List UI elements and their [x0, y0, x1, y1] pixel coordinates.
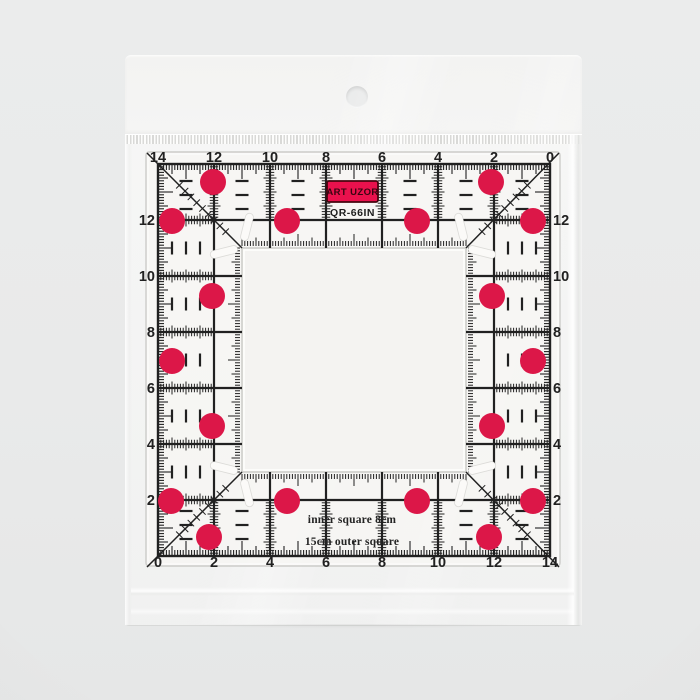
red-dot: [159, 348, 185, 374]
scale-number: 4: [147, 437, 155, 453]
scale-number: 8: [322, 150, 330, 166]
brand-label-text: ART UZOR: [326, 187, 378, 198]
scale-number: 12: [206, 150, 222, 166]
scene: 14121086420024681012141210864212108642 A…: [0, 0, 700, 700]
scale-number: 10: [430, 555, 446, 571]
inner-square-hole: [242, 248, 466, 472]
red-dot: [520, 208, 546, 234]
scale-number: 8: [378, 555, 386, 571]
scale-number: 4: [434, 150, 442, 166]
red-dot: [274, 208, 300, 234]
scale-number: 2: [553, 493, 561, 509]
scale-number: 8: [553, 325, 561, 341]
scale-number: 0: [546, 150, 554, 166]
red-dot: [479, 413, 505, 439]
caption-inner-square: inner square 8cm: [308, 514, 397, 526]
quilting-ruler: 14121086420024681012141210864212108642 A…: [0, 0, 700, 700]
red-dot: [404, 208, 430, 234]
scale-number: 10: [553, 269, 569, 285]
scale-number: 6: [322, 555, 330, 571]
caption-outer-square: 15cm outer square: [305, 536, 399, 548]
red-dot: [520, 348, 546, 374]
scale-number: 2: [210, 555, 218, 571]
scale-number: 4: [266, 555, 274, 571]
scale-number: 10: [139, 269, 155, 285]
scale-number: 14: [150, 150, 166, 166]
red-dot: [200, 169, 226, 195]
scale-number: 10: [262, 150, 278, 166]
red-dot: [476, 524, 502, 550]
red-dot: [159, 208, 185, 234]
red-dot: [196, 524, 222, 550]
scale-number: 8: [147, 325, 155, 341]
scale-number: 14: [542, 555, 558, 571]
scale-number: 12: [486, 555, 502, 571]
scale-number: 4: [553, 437, 561, 453]
scale-number: 6: [378, 150, 386, 166]
model-number: QR-66IN: [330, 207, 375, 219]
brand-label: ART UZOR QR-66IN: [326, 181, 378, 219]
red-dot: [404, 488, 430, 514]
red-dot: [479, 283, 505, 309]
scale-number: 12: [553, 213, 569, 229]
scale-number: 6: [147, 381, 155, 397]
red-dot: [478, 169, 504, 195]
red-dot: [520, 488, 546, 514]
red-dot: [199, 283, 225, 309]
scale-number: 6: [553, 381, 561, 397]
scale-number: 2: [490, 150, 498, 166]
scale-number: 2: [147, 493, 155, 509]
scale-number: 0: [154, 555, 162, 571]
scale-number: 12: [139, 213, 155, 229]
red-dot: [274, 488, 300, 514]
red-dot: [199, 413, 225, 439]
red-dot: [158, 488, 184, 514]
